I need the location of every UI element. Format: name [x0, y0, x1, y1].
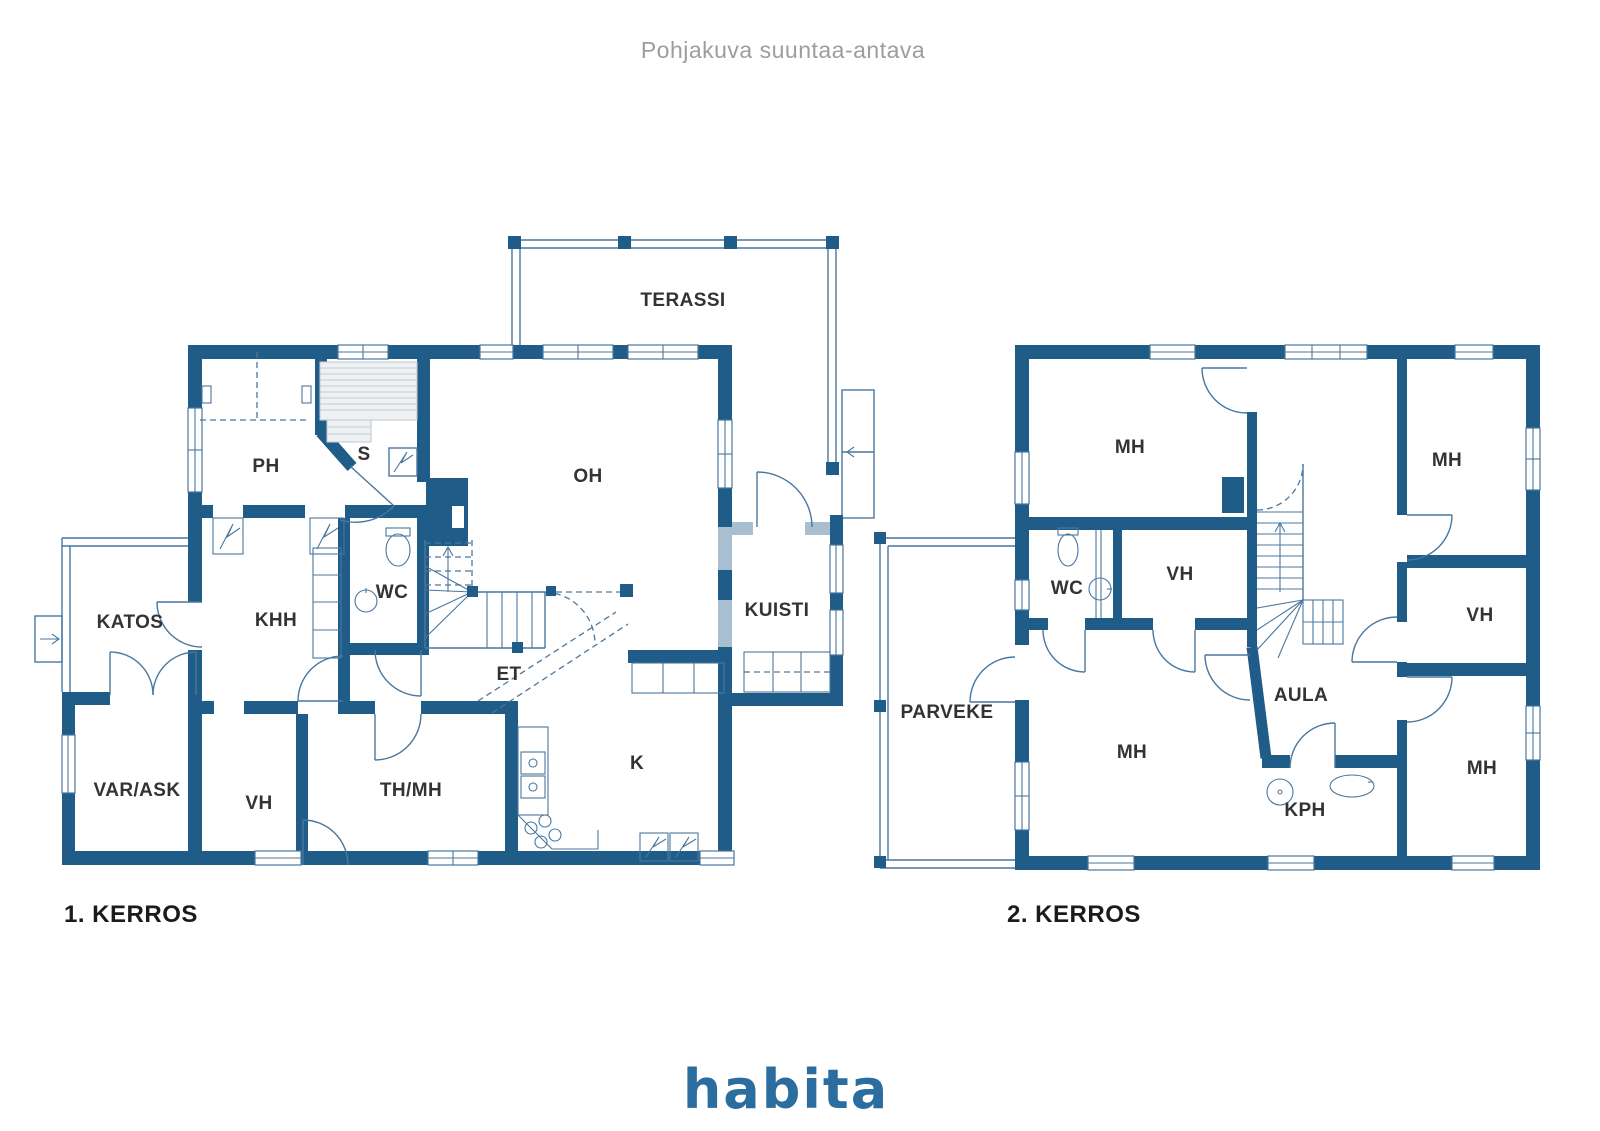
- room-label-mh-top-left: MH: [1115, 437, 1145, 458]
- kitchen-counter: [518, 663, 724, 849]
- floor1-plan: TERASSI PH S OH KATOS KHH WC KUISTI ET V…: [35, 236, 874, 865]
- room-label-ph: PH: [252, 456, 279, 477]
- kph-sink-icon: [1330, 775, 1374, 797]
- floor2-fixtures: [1058, 528, 1374, 805]
- room-label-khh: KHH: [255, 610, 297, 631]
- floor2-plan: MH MH WC VH VH PARVEKE MH AULA KPH MH: [874, 345, 1540, 870]
- kuisti-steps: [744, 652, 830, 692]
- room-label-terassi: TERASSI: [640, 290, 725, 311]
- floor2-doors: [970, 368, 1452, 768]
- room-label-kph: KPH: [1284, 800, 1325, 821]
- room-label-mh-bottom-right: MH: [1467, 758, 1497, 779]
- floor1-interior-walls: [188, 345, 732, 865]
- electric-panel-icons: [213, 518, 344, 554]
- room-label-mh-bottom: MH: [1117, 742, 1147, 763]
- parveke-outline: [874, 532, 1015, 868]
- room-label-oh: OH: [573, 466, 602, 487]
- floor1-stairs: [425, 540, 633, 713]
- floor1-label: 1. KERROS: [64, 901, 198, 928]
- floor2-stairs: [1257, 464, 1343, 658]
- floor2-windows: [1015, 345, 1540, 870]
- room-label-vh-right: VH: [1466, 605, 1493, 626]
- room-label-th-mh: TH/MH: [380, 780, 442, 801]
- room-label-et: ET: [496, 664, 521, 685]
- room-label-vh1: VH: [245, 793, 272, 814]
- floor2-outer-walls: [1015, 345, 1540, 870]
- wc1-sink-icon: [355, 588, 377, 612]
- room-label-s: S: [357, 444, 370, 465]
- room-label-parveke: PARVEKE: [901, 702, 994, 723]
- sauna-stove-icon: [389, 448, 417, 476]
- room-label-wc2: WC: [1051, 578, 1083, 599]
- wc1-toilet-icon: [386, 528, 410, 566]
- room-label-aula: AULA: [1274, 685, 1328, 706]
- floor2-label: 2. KERROS: [1007, 901, 1141, 928]
- floorplan-page: TERASSI PH S OH KATOS KHH WC KUISTI ET V…: [0, 0, 1600, 1131]
- room-label-mh-top-right: MH: [1432, 450, 1462, 471]
- terrace-outline: [508, 236, 874, 518]
- room-label-wc1: WC: [376, 582, 408, 603]
- room-label-katos: KATOS: [97, 612, 164, 633]
- room-label-kuisti: KUISTI: [745, 600, 810, 621]
- habita-logo: habita: [683, 1058, 889, 1121]
- room-label-var-ask: VAR/ASK: [94, 780, 181, 801]
- page-title: Pohjakuva suuntaa-antava: [641, 37, 925, 63]
- room-label-vh-center: VH: [1166, 564, 1193, 585]
- floorplan-drawing: TERASSI PH S OH KATOS KHH WC KUISTI ET V…: [0, 0, 1600, 1131]
- wc2-toilet-icon: [1058, 528, 1078, 566]
- floor2-interior-walls: [1029, 359, 1526, 856]
- room-label-k: K: [630, 753, 644, 774]
